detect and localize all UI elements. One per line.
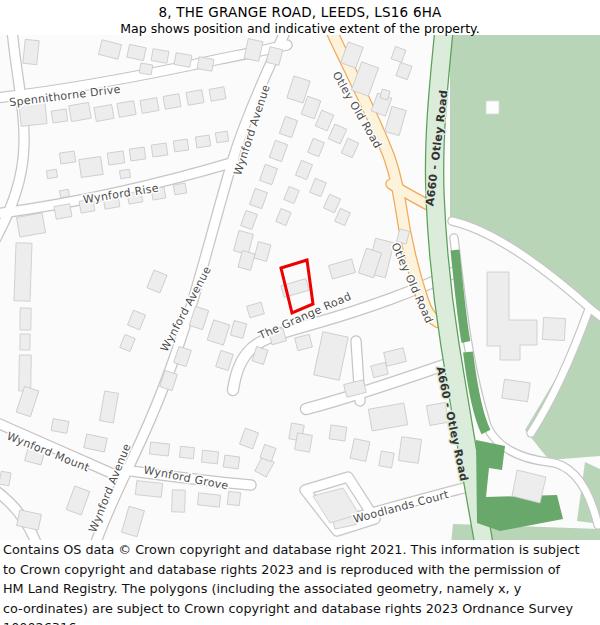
copyright-line: Contains OS data © Crown copyright and d… [3,540,600,560]
building-footprint [379,451,394,468]
map-container: Spennithorne DriveWynford AvenueWynford … [0,35,600,540]
building-footprint [69,102,91,121]
building-footprint [107,151,125,165]
building-footprint [59,151,75,164]
building-footprint [20,308,31,330]
building-footprint [23,39,39,64]
building-footprint [215,131,228,143]
building-footprint [20,334,30,350]
building-footprint [117,101,136,118]
building-footprint [179,446,194,458]
building-footprint [0,471,11,486]
building-footprint [329,425,347,441]
copyright-notice: Contains OS data © Crown copyright and d… [0,540,600,625]
copyright-line: HM Land Registry. The polygons (includin… [3,579,600,599]
building-footprint [163,94,181,110]
building-footprint [172,490,186,512]
building-footprint [119,169,130,178]
building-footprint [129,147,146,161]
building-footprint [398,437,421,464]
building-footprint [19,355,32,391]
building-footprint [46,169,57,178]
building-footprint [139,63,153,75]
building-footprint [54,204,72,220]
building-footprint [14,243,32,302]
building-footprint [197,493,220,507]
copyright-line: to Crown copyright and database rights 2… [3,560,600,580]
map-header: 8, THE GRANGE ROAD, LEEDS, LS16 6HA Map … [0,0,600,35]
building-footprint [197,57,214,71]
building-footprint [140,98,159,114]
building-footprint [149,442,169,456]
building-footprint [173,139,188,152]
building-footprint [542,317,565,340]
building-footprint [502,379,530,401]
page-subtitle: Map shows position and indicative extent… [0,21,600,36]
building-footprint [209,87,226,101]
building-footprint [223,455,240,469]
building-footprint [486,101,499,114]
building-footprint [135,481,162,498]
building-footprint [151,143,168,157]
building-footprint [16,213,45,237]
building-footprint [295,433,313,452]
copyright-line: co-ordinates) are subject to Crown copyr… [3,599,600,619]
building-footprint [174,53,192,68]
copyright-line: 100026316. [3,618,600,625]
building-footprint [201,450,218,464]
building-footprint [151,49,169,64]
map-canvas: Spennithorne DriveWynford AvenueWynford … [0,35,600,540]
building-footprint [51,109,68,123]
building-footprint [51,419,69,434]
building-footprint [173,183,187,195]
building-footprint [79,157,103,178]
building-footprint [227,491,240,505]
building-footprint [94,105,114,122]
building-footprint [59,189,69,197]
building-footprint [195,135,210,148]
building-footprint [186,90,204,106]
page-title: 8, THE GRANGE ROAD, LEEDS, LS16 6HA [0,0,600,20]
